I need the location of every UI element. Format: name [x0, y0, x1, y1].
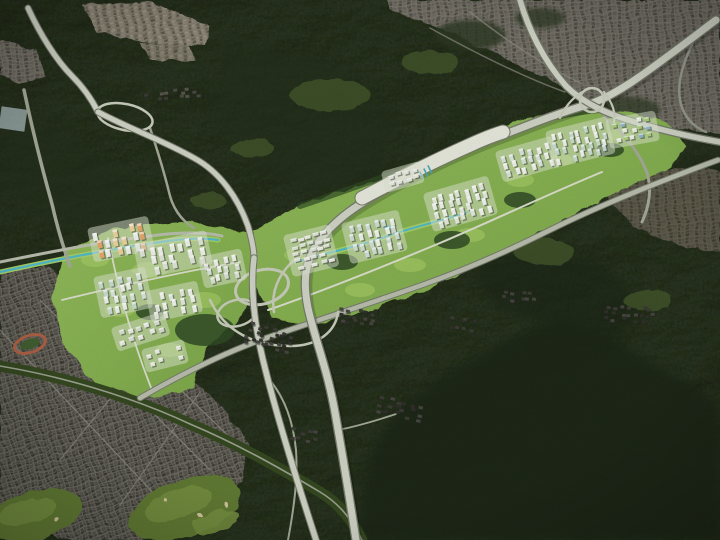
vignette-overlay [0, 0, 720, 540]
masterplan-scene [0, 0, 720, 540]
aerial-rendering [0, 0, 720, 540]
